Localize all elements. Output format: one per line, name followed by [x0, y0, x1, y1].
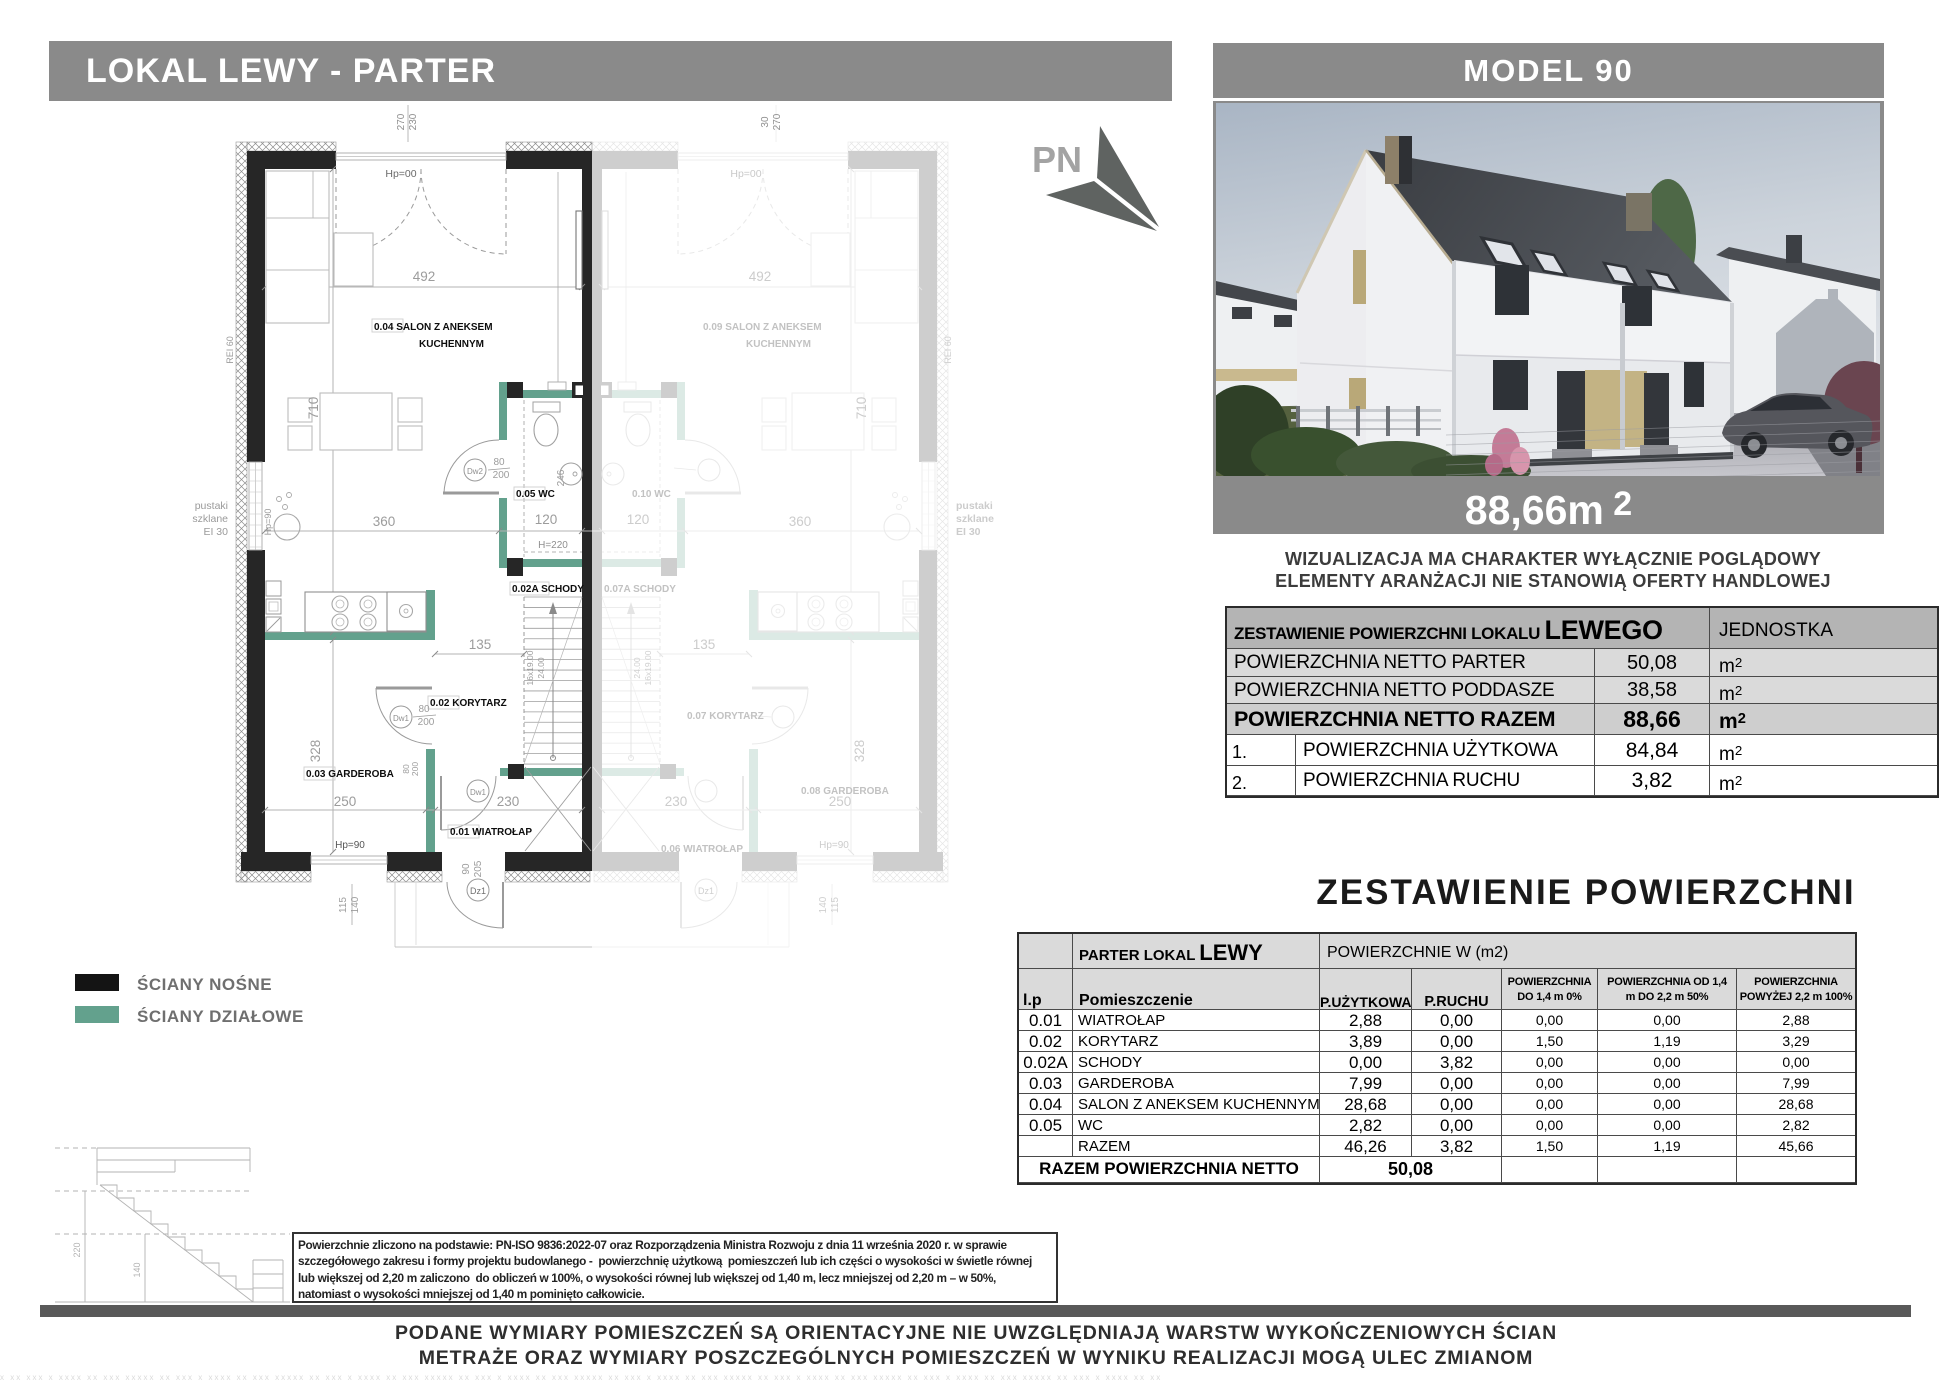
svg-text:135: 135	[693, 637, 716, 652]
svg-text:H=220: H=220	[538, 540, 568, 551]
svg-text:0.01 WIATROŁAP: 0.01 WIATROŁAP	[450, 827, 532, 838]
svg-text:230: 230	[497, 794, 520, 809]
svg-text:710: 710	[854, 397, 869, 420]
svg-text:0.04 SALON Z ANEKSEM: 0.04 SALON Z ANEKSEM	[374, 322, 493, 333]
svg-text:0.07 KORYTARZ: 0.07 KORYTARZ	[687, 711, 764, 722]
svg-text:Hp=90: Hp=90	[335, 840, 365, 851]
svg-text:30: 30	[760, 116, 771, 128]
svg-text:Dz1: Dz1	[698, 886, 714, 896]
svg-text:270: 270	[772, 113, 783, 130]
svg-text:710: 710	[306, 397, 321, 420]
svg-text:328: 328	[852, 740, 867, 763]
svg-text:pustaki: pustaki	[956, 500, 993, 512]
svg-text:120: 120	[535, 512, 558, 527]
svg-text:PN: PN	[1032, 139, 1082, 180]
svg-text:360: 360	[789, 514, 812, 529]
svg-text:szklane: szklane	[192, 513, 228, 525]
svg-text:EI 30: EI 30	[203, 526, 228, 538]
svg-text:ŚCIANY NOŚNE: ŚCIANY NOŚNE	[137, 975, 272, 994]
svg-text:Dw1: Dw1	[393, 714, 410, 723]
svg-text:szklane: szklane	[956, 513, 994, 525]
svg-text:360: 360	[373, 514, 396, 529]
svg-text:200: 200	[493, 470, 510, 481]
svg-text:16x19.00: 16x19.00	[525, 650, 535, 685]
svg-text:80: 80	[493, 457, 505, 468]
svg-text:492: 492	[749, 269, 772, 284]
svg-text:115: 115	[830, 897, 841, 913]
svg-text:KUCHENNYM: KUCHENNYM	[746, 339, 811, 350]
svg-text:Hp=00: Hp=00	[385, 168, 416, 180]
svg-text:0.02 KORYTARZ: 0.02 KORYTARZ	[430, 698, 507, 709]
svg-text:492: 492	[413, 269, 436, 284]
svg-text:Dw1: Dw1	[470, 788, 487, 797]
svg-text:80: 80	[418, 704, 430, 715]
svg-text:246: 246	[556, 469, 567, 486]
svg-text:0.07A SCHODY: 0.07A SCHODY	[604, 584, 676, 595]
svg-text:Dz1: Dz1	[470, 886, 486, 896]
svg-text:135: 135	[469, 637, 492, 652]
svg-text:0.06 WIATROŁAP: 0.06 WIATROŁAP	[661, 844, 743, 855]
svg-text:205: 205	[473, 860, 484, 877]
svg-text:230: 230	[665, 794, 688, 809]
svg-text:250: 250	[829, 794, 852, 809]
svg-text:140: 140	[132, 1262, 142, 1277]
svg-text:115: 115	[338, 897, 349, 913]
svg-text:Hp=00: Hp=00	[730, 168, 761, 180]
svg-text:120: 120	[627, 512, 650, 527]
svg-text:250: 250	[334, 794, 357, 809]
svg-text:KUCHENNYM: KUCHENNYM	[419, 339, 484, 350]
svg-text:ŚCIANY DZIAŁOWE: ŚCIANY DZIAŁOWE	[137, 1007, 304, 1026]
svg-text:24.00: 24.00	[536, 657, 546, 679]
svg-text:270: 270	[396, 113, 407, 130]
svg-text:0.03 GARDEROBA: 0.03 GARDEROBA	[306, 769, 394, 780]
svg-text:230: 230	[408, 113, 419, 130]
svg-text:EI 30: EI 30	[956, 526, 981, 538]
svg-text:328: 328	[308, 740, 323, 763]
svg-text:200: 200	[418, 717, 435, 728]
svg-text:Dw2: Dw2	[467, 467, 484, 476]
svg-text:140: 140	[818, 896, 829, 913]
svg-text:0.09 SALON Z ANEKSEM: 0.09 SALON Z ANEKSEM	[703, 322, 822, 333]
svg-text:0.02A SCHODY: 0.02A SCHODY	[512, 584, 584, 595]
svg-text:16x19.00: 16x19.00	[643, 650, 653, 685]
svg-text:90: 90	[461, 863, 472, 875]
svg-text:220: 220	[72, 1242, 82, 1257]
svg-text:pustaki: pustaki	[195, 500, 228, 512]
svg-text:24.00: 24.00	[632, 657, 642, 679]
svg-text:0.10 WC: 0.10 WC	[632, 489, 671, 500]
svg-text:200: 200	[410, 762, 420, 776]
svg-text:0.05 WC: 0.05 WC	[516, 489, 555, 500]
svg-text:REI 60: REI 60	[943, 336, 953, 364]
svg-text:REI 60: REI 60	[225, 336, 235, 364]
svg-text:140: 140	[350, 896, 361, 913]
svg-text:Hp=90: Hp=90	[263, 509, 273, 536]
svg-text:Hp=90: Hp=90	[819, 840, 849, 851]
